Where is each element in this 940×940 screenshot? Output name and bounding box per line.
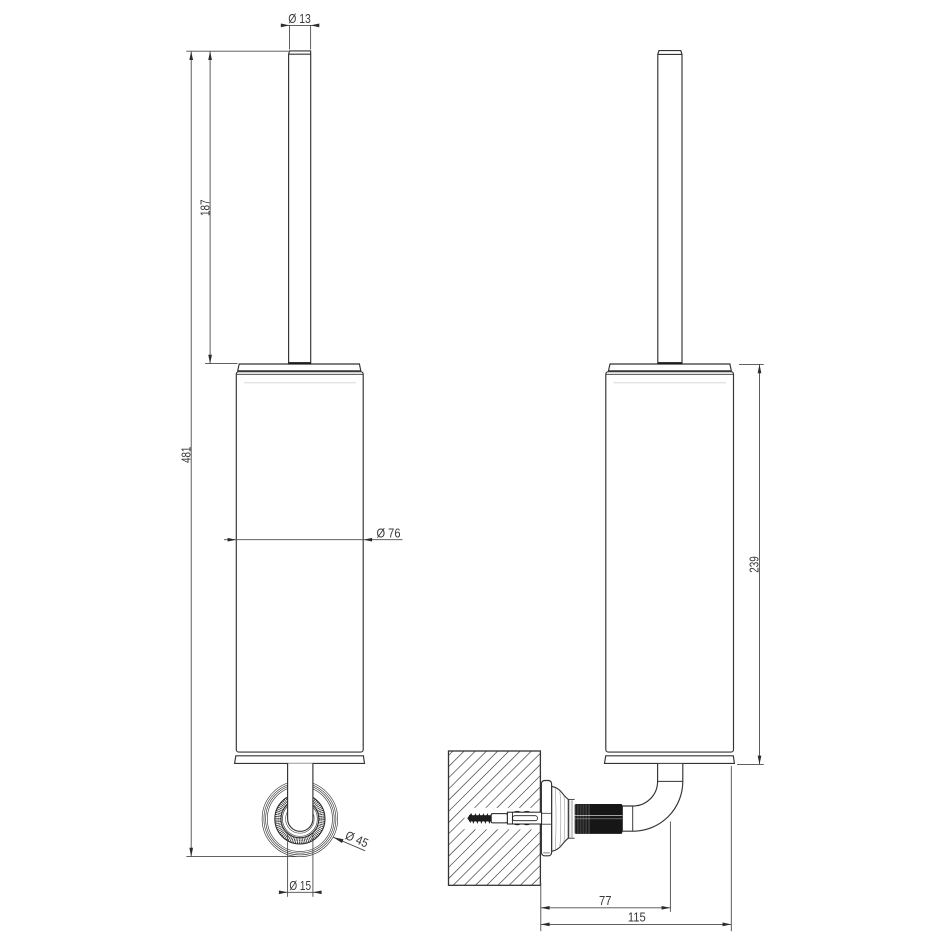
svg-text:77: 77 [599, 894, 612, 908]
svg-text:115: 115 [628, 910, 646, 924]
svg-text:239: 239 [747, 556, 762, 573]
svg-text:Ø 15: Ø 15 [289, 879, 311, 893]
svg-text:Ø 13: Ø 13 [288, 12, 311, 26]
svg-text:481: 481 [178, 447, 193, 464]
svg-text:187: 187 [197, 199, 212, 216]
svg-text:Ø 76: Ø 76 [377, 526, 401, 540]
